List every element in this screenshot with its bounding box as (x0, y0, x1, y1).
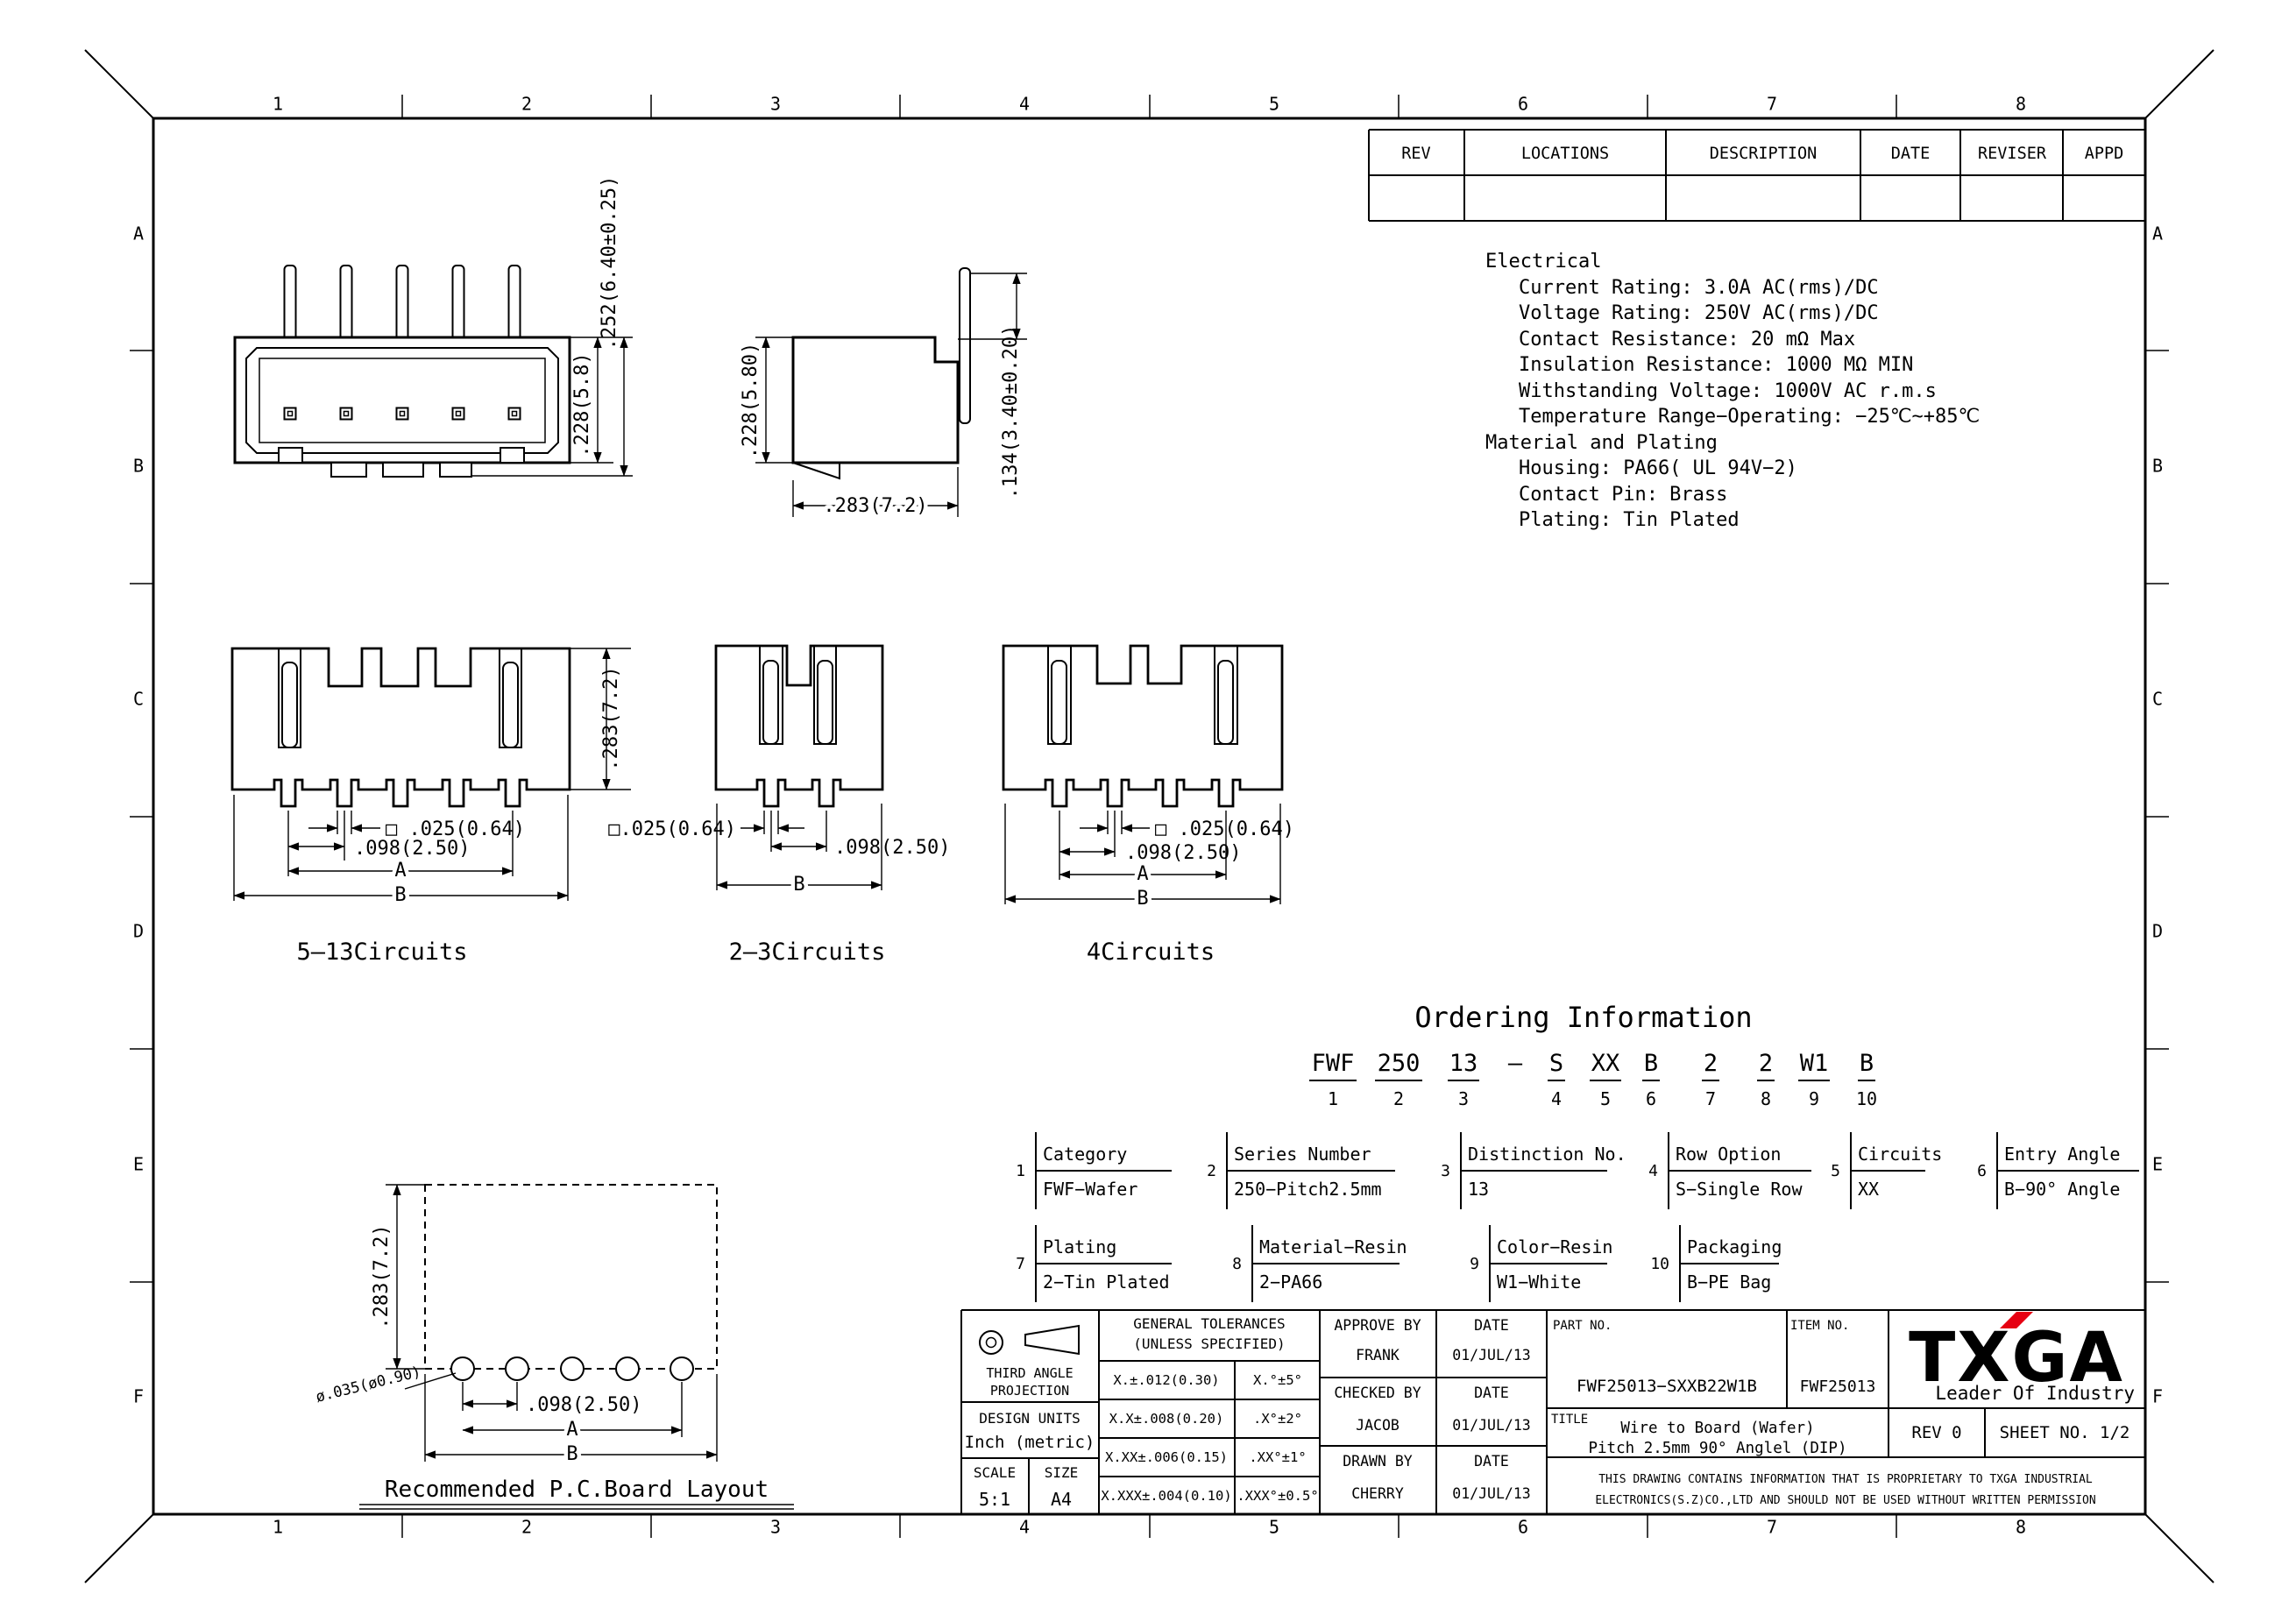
field-index: 4 (1648, 1162, 1658, 1180)
dim-text: B (566, 1443, 578, 1465)
spec-line: Housing: PA66( UL 94V−2) (1519, 457, 1797, 479)
signoff-role: CHECKED BY (1334, 1385, 1421, 1401)
tolerances-header: GENERAL TOLERANCES (1133, 1315, 1285, 1332)
code-index: 10 (1856, 1088, 1877, 1109)
signoff-date: 01/JUL/13 (1452, 1347, 1530, 1363)
signoff-name: FRANK (1356, 1347, 1400, 1363)
dim-text: .228(5.80) (740, 343, 762, 458)
zone-col-label: 2 (521, 1517, 532, 1538)
rev-col-header: DESCRIPTION (1710, 145, 1818, 163)
field-label: Packaging (1687, 1236, 1782, 1257)
zone-col-label: 1 (273, 94, 283, 115)
field-index: 8 (1232, 1255, 1242, 1273)
dim-text: B (394, 884, 406, 906)
rev-col-header: DATE (1891, 145, 1931, 163)
title-label: TITLE (1551, 1413, 1588, 1427)
signoff-role: APPROVE BY (1334, 1317, 1421, 1334)
part-no-value: FWF25013−SXXB22W1B (1577, 1377, 1757, 1396)
field-value: 2−Tin Plated (1043, 1271, 1170, 1293)
signoff-date: 01/JUL/13 (1452, 1417, 1530, 1434)
signoff-date-label: DATE (1474, 1385, 1509, 1401)
rev-col-header: APPD (2085, 145, 2124, 163)
size-value: A4 (1051, 1489, 1072, 1510)
code-index: 4 (1551, 1088, 1562, 1109)
rev-value: REV 0 (1911, 1423, 1961, 1442)
field-value: 2−PA66 (1259, 1271, 1322, 1293)
zone-col-label: 1 (273, 1517, 283, 1538)
dim-text: A (1137, 863, 1148, 885)
code-part: 13 (1449, 1050, 1478, 1077)
dim-text: B (1137, 888, 1148, 910)
code-part: — (1508, 1050, 1523, 1077)
zone-row-label: B (2152, 456, 2163, 477)
spec-line: Contact Pin: Brass (1519, 484, 1727, 506)
proprietary-notice: ELECTRONICS(S.Z)CO.,LTD AND SHOULD NOT B… (1595, 1494, 2095, 1507)
field-value: W1−White (1497, 1271, 1581, 1293)
field-value: FWF−Wafer (1043, 1179, 1137, 1200)
code-index: 2 (1393, 1088, 1404, 1109)
txga-logo: TXGA Leader Of Industry (1909, 1312, 2135, 1404)
field-label: Plating (1043, 1236, 1116, 1257)
signoff-name: JACOB (1356, 1417, 1400, 1434)
zone-row-label: E (133, 1154, 144, 1175)
spec-line: Electrical (1485, 251, 1601, 273)
field-label: Color−Resin (1497, 1236, 1612, 1257)
dim-text: .098(2.50) (354, 838, 470, 860)
tolerance-value: .XXX°±0.5° (1237, 1488, 1318, 1504)
scale-value: 5:1 (979, 1489, 1010, 1510)
dim-text: □ .025(0.64) (1155, 818, 1294, 840)
dim-text: □.025(0.64) (608, 818, 736, 840)
item-no-value: FWF25013 (1800, 1378, 1876, 1396)
dim-text: .134(3.40±0.20) (1000, 325, 1022, 499)
projection-label: THIRD ANGLE (986, 1365, 1073, 1381)
field-label: Category (1043, 1144, 1127, 1165)
dim-text: .098(2.50) (1125, 842, 1241, 864)
zone-col-label: 7 (1767, 1517, 1777, 1538)
tolerance-value: X.X±.008(0.20) (1109, 1411, 1224, 1427)
spec-line: Contact Resistance: 20 mΩ Max (1519, 329, 1855, 351)
field-index: 10 (1650, 1255, 1669, 1273)
ordering-field: 2 Series Number 250−Pitch2.5mm (1207, 1132, 1395, 1209)
code-part: S (1549, 1050, 1563, 1077)
tolerance-value: X.XX±.006(0.15) (1105, 1449, 1228, 1465)
zone-row-label: D (2152, 921, 2163, 942)
field-index: 3 (1441, 1162, 1450, 1180)
dim-text: .283(7.2) (600, 666, 622, 770)
zone-row-label: E (2152, 1154, 2163, 1175)
zone-col-label: 6 (1518, 1517, 1528, 1538)
mount-tab (440, 463, 471, 477)
item-no-label: ITEM NO. (1790, 1319, 1849, 1333)
view-caption: 2–3Circuits (729, 938, 886, 966)
zone-row-label: C (133, 689, 144, 710)
spec-line: Insulation Resistance: 1000 MΩ MIN (1519, 354, 1913, 376)
mount-tab (331, 463, 366, 477)
drawing-sheet: 1 2 3 4 5 6 7 8 1 2 3 4 5 6 7 8 A B C D … (0, 0, 2296, 1622)
code-index: 3 (1458, 1088, 1469, 1109)
part-no-label: PART NO. (1553, 1319, 1612, 1333)
view-caption: 4Circuits (1087, 938, 1215, 966)
code-part: B (1644, 1050, 1658, 1077)
dim-text: B (793, 874, 804, 896)
spec-line: Material and Plating (1485, 432, 1718, 454)
zone-row-label: C (2152, 689, 2163, 710)
signoff-role: DRAWN BY (1343, 1453, 1413, 1470)
latch-slot (279, 448, 302, 463)
field-index: 5 (1831, 1162, 1840, 1180)
design-units-value: Inch (metric) (965, 1433, 1095, 1452)
dim-text: .228(5.8) (571, 352, 593, 457)
signoff-date-label: DATE (1474, 1317, 1509, 1334)
spec-line: Current Rating: 3.0A AC(rms)/DC (1519, 277, 1879, 299)
design-units-label: DESIGN UNITS (979, 1410, 1081, 1427)
dim-text: .252(6.40±0.25) (599, 176, 620, 351)
zone-row-label: A (2152, 223, 2163, 244)
tolerance-value: .XX°±1° (1249, 1449, 1306, 1465)
zone-col-label: 3 (770, 1517, 781, 1538)
field-label: Circuits (1858, 1144, 1942, 1165)
field-index: 9 (1470, 1255, 1479, 1273)
code-index: 5 (1600, 1088, 1611, 1109)
code-index: 6 (1646, 1088, 1656, 1109)
mount-tab (383, 463, 423, 477)
code-index: 8 (1761, 1088, 1771, 1109)
zone-col-label: 5 (1269, 1517, 1279, 1538)
field-label: Entry Angle (2004, 1144, 2120, 1165)
zone-col-label: 4 (1019, 94, 1030, 115)
dim-text: A (394, 860, 406, 882)
proprietary-notice: THIS DRAWING CONTAINS INFORMATION THAT I… (1598, 1473, 2093, 1486)
field-index: 7 (1016, 1255, 1025, 1273)
view-caption: 5–13Circuits (296, 938, 467, 966)
drawing-title-line: Wire to Board (Wafer) (1620, 1420, 1814, 1437)
signoff-name: CHERRY (1351, 1485, 1404, 1502)
dim-text: .098(2.50) (834, 837, 950, 859)
housing-outline (235, 337, 570, 463)
code-part: 2 (1759, 1050, 1773, 1077)
dim-text: .098(2.50) (526, 1394, 641, 1416)
field-value: 250−Pitch2.5mm (1234, 1179, 1382, 1200)
code-part: 250 (1378, 1050, 1421, 1077)
signoff-date-label: DATE (1474, 1453, 1509, 1470)
code-part: 2 (1704, 1050, 1718, 1077)
zone-col-label: 8 (2016, 1517, 2026, 1538)
code-part: W1 (1800, 1050, 1829, 1077)
field-label: Row Option (1676, 1144, 1781, 1165)
sheet-no-value: SHEET NO. 1/2 (2000, 1423, 2130, 1442)
tolerance-value: .X°±2° (1253, 1411, 1302, 1427)
zone-col-label: 7 (1767, 94, 1777, 115)
spec-line: Withstanding Voltage: 1000V AC r.m.s (1519, 380, 1937, 402)
zone-col-label: 3 (770, 94, 781, 115)
field-index: 6 (1977, 1162, 1987, 1180)
code-part: B (1860, 1050, 1874, 1077)
housing-outline (793, 337, 958, 463)
zone-row-label: B (133, 456, 144, 477)
tolerance-value: X.°±5° (1253, 1372, 1302, 1388)
scale-label: SCALE (974, 1464, 1016, 1481)
code-index: 1 (1328, 1088, 1338, 1109)
zone-col-label: 6 (1518, 94, 1528, 115)
zone-row-label: A (133, 223, 144, 244)
spec-line: Temperature Range−Operating: −25℃~+85℃ (1519, 406, 1980, 428)
zone-row-label: F (133, 1386, 144, 1407)
zone-row-label: D (133, 921, 144, 942)
dim-text: A (566, 1419, 578, 1441)
projection-label: PROJECTION (990, 1383, 1069, 1399)
zone-col-label: 8 (2016, 94, 2026, 115)
tolerance-value: X.±.012(0.30) (1113, 1372, 1219, 1388)
field-label: Distinction No. (1468, 1144, 1626, 1165)
size-label: SIZE (1045, 1464, 1079, 1481)
field-index: 2 (1207, 1162, 1216, 1180)
ordering-title: Ordering Information (1414, 1001, 1752, 1034)
field-value: 13 (1468, 1179, 1489, 1200)
field-value: B−90° Angle (2004, 1179, 2120, 1200)
tolerance-value: X.XXX±.004(0.10) (1101, 1488, 1231, 1504)
zone-col-label: 2 (521, 94, 532, 115)
code-part: XX (1591, 1050, 1620, 1077)
signoff-date: 01/JUL/13 (1452, 1485, 1530, 1502)
spec-line: Voltage Rating: 250V AC(rms)/DC (1519, 302, 1879, 324)
field-label: Material−Resin (1259, 1236, 1407, 1257)
pcb-caption: Recommended P.C.Board Layout (385, 1477, 769, 1503)
code-index: 7 (1705, 1088, 1716, 1109)
zone-col-label: 4 (1019, 1517, 1030, 1538)
rev-col-header: REVISER (1978, 145, 2047, 163)
dim-text: .283(7.2) (371, 1224, 393, 1328)
rev-col-header: LOCATIONS (1521, 145, 1609, 163)
latch-slot (500, 448, 524, 463)
code-part: FWF (1312, 1050, 1355, 1077)
zone-row-label: F (2152, 1386, 2163, 1407)
code-index: 9 (1809, 1088, 1819, 1109)
rev-col-header: REV (1401, 145, 1430, 163)
field-value: S−Single Row (1676, 1179, 1803, 1200)
spec-line: Plating: Tin Plated (1519, 509, 1740, 531)
dim-text: .283(7.2) (823, 495, 927, 517)
logo-tagline: Leader Of Industry (1935, 1383, 2135, 1404)
field-index: 1 (1016, 1162, 1025, 1180)
zone-col-label: 5 (1269, 94, 1279, 115)
drawing-title-line: Pitch 2.5mm 90° Anglel (DIP) (1588, 1440, 1846, 1457)
housing-outline (1003, 646, 1282, 806)
field-value: XX (1858, 1179, 1879, 1200)
field-value: B−PE Bag (1687, 1271, 1771, 1293)
tolerances-header: (UNLESS SPECIFIED) (1133, 1335, 1285, 1352)
field-label: Series Number (1234, 1144, 1371, 1165)
